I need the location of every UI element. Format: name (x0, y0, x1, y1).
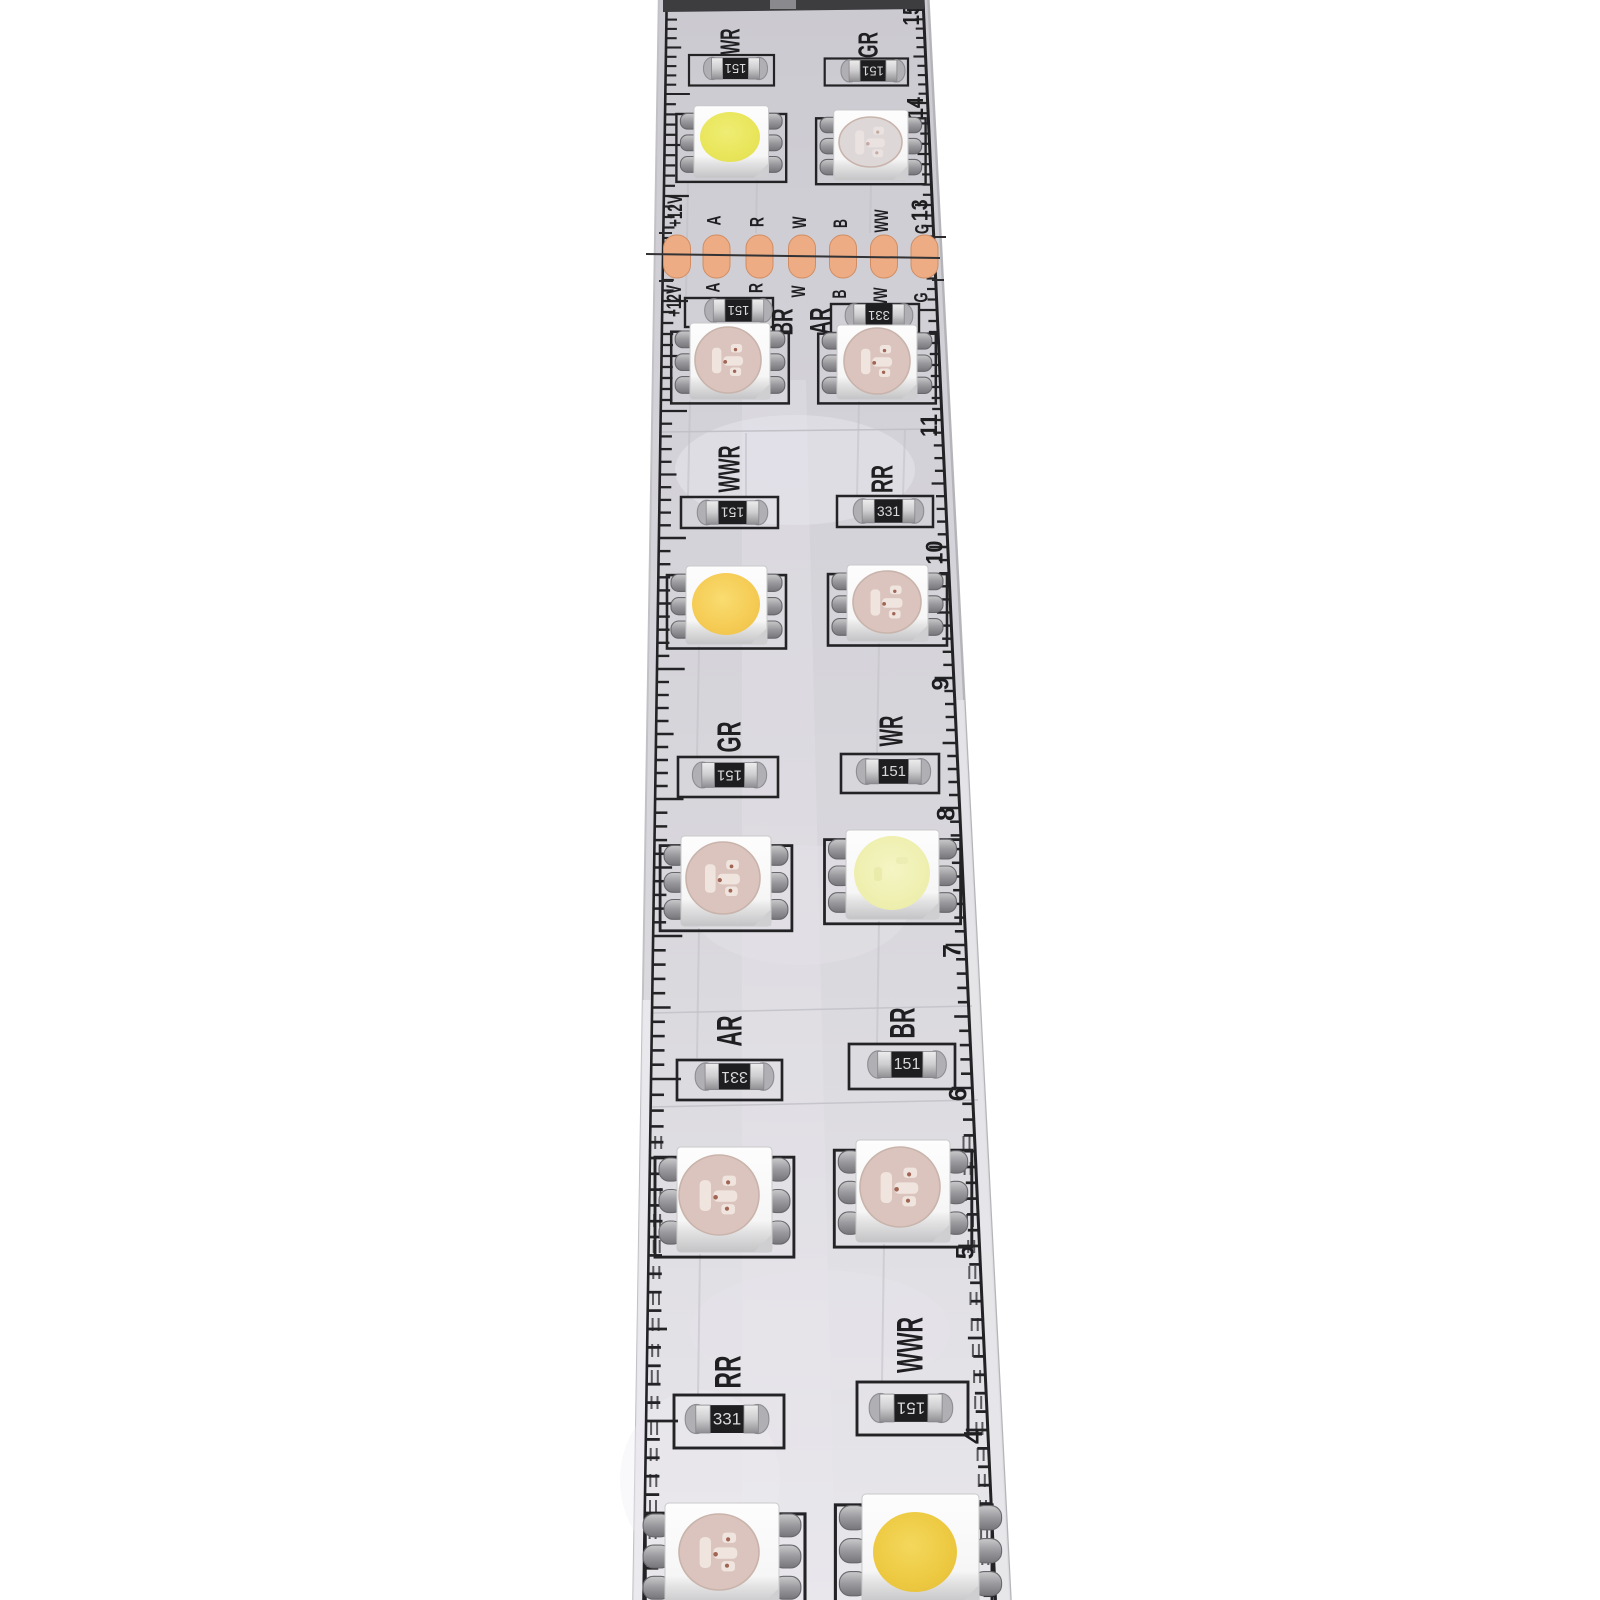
svg-text:R: R (747, 283, 768, 293)
svg-text:151: 151 (862, 63, 884, 78)
svg-text:GR: GR (853, 32, 884, 58)
svg-text:151: 151 (725, 61, 747, 76)
svg-text:331: 331 (713, 1410, 741, 1429)
svg-text:13: 13 (907, 199, 933, 221)
svg-text:B: B (831, 219, 852, 228)
svg-text:WR: WR (715, 29, 746, 55)
svg-text:BR: BR (884, 1008, 923, 1039)
svg-text:WWR: WWR (890, 1317, 931, 1373)
svg-text:B: B (830, 290, 851, 299)
svg-text:AR: AR (805, 307, 838, 334)
svg-text:W: W (790, 216, 811, 228)
svg-text:R: R (748, 217, 769, 227)
svg-text:151: 151 (897, 1399, 925, 1418)
svg-text:151: 151 (728, 303, 750, 318)
svg-text:WR: WR (873, 715, 910, 746)
svg-text:10: 10 (922, 541, 949, 565)
svg-text:331: 331 (721, 1068, 748, 1085)
svg-text:331: 331 (877, 503, 901, 519)
svg-text:331: 331 (868, 308, 890, 323)
svg-text:WW: WW (872, 209, 893, 232)
svg-text:RR: RR (865, 465, 900, 493)
svg-text:8: 8 (932, 807, 960, 821)
svg-text:GR: GR (711, 721, 748, 752)
svg-text:A: A (704, 282, 725, 292)
svg-text:151: 151 (894, 1056, 921, 1073)
svg-text:+12V: +12V (664, 195, 687, 227)
svg-text:A: A (705, 215, 726, 225)
svg-text:151: 151 (717, 767, 742, 784)
svg-text:RR: RR (708, 1356, 749, 1389)
svg-text:W: W (789, 285, 810, 297)
svg-text:11: 11 (916, 414, 943, 437)
svg-text:G: G (913, 224, 934, 234)
svg-text:G: G (912, 293, 933, 303)
svg-text:9: 9 (928, 677, 955, 690)
svg-text:WWR: WWR (712, 446, 747, 493)
svg-text:+12V: +12V (663, 285, 686, 317)
svg-text:AR: AR (711, 1016, 750, 1047)
svg-text:151: 151 (881, 763, 906, 780)
svg-text:7: 7 (938, 944, 966, 958)
svg-text:151: 151 (721, 505, 745, 521)
